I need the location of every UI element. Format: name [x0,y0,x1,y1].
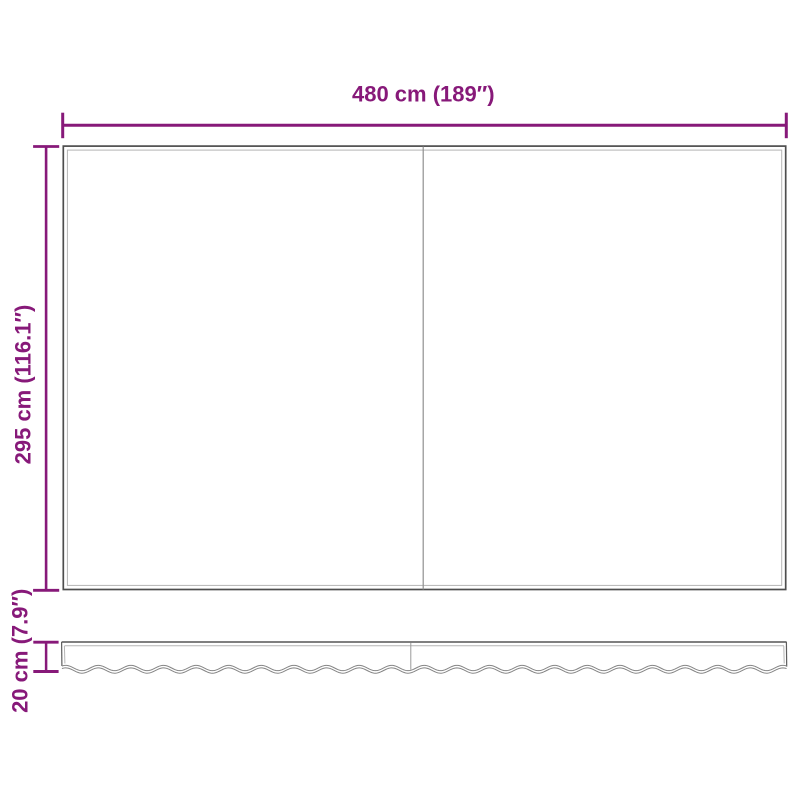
svg-text:480 cm (189″): 480 cm (189″) [352,82,495,107]
svg-text:20 cm (7.9″): 20 cm (7.9″) [8,589,33,713]
svg-text:295 cm (116.1″): 295 cm (116.1″) [11,305,36,465]
